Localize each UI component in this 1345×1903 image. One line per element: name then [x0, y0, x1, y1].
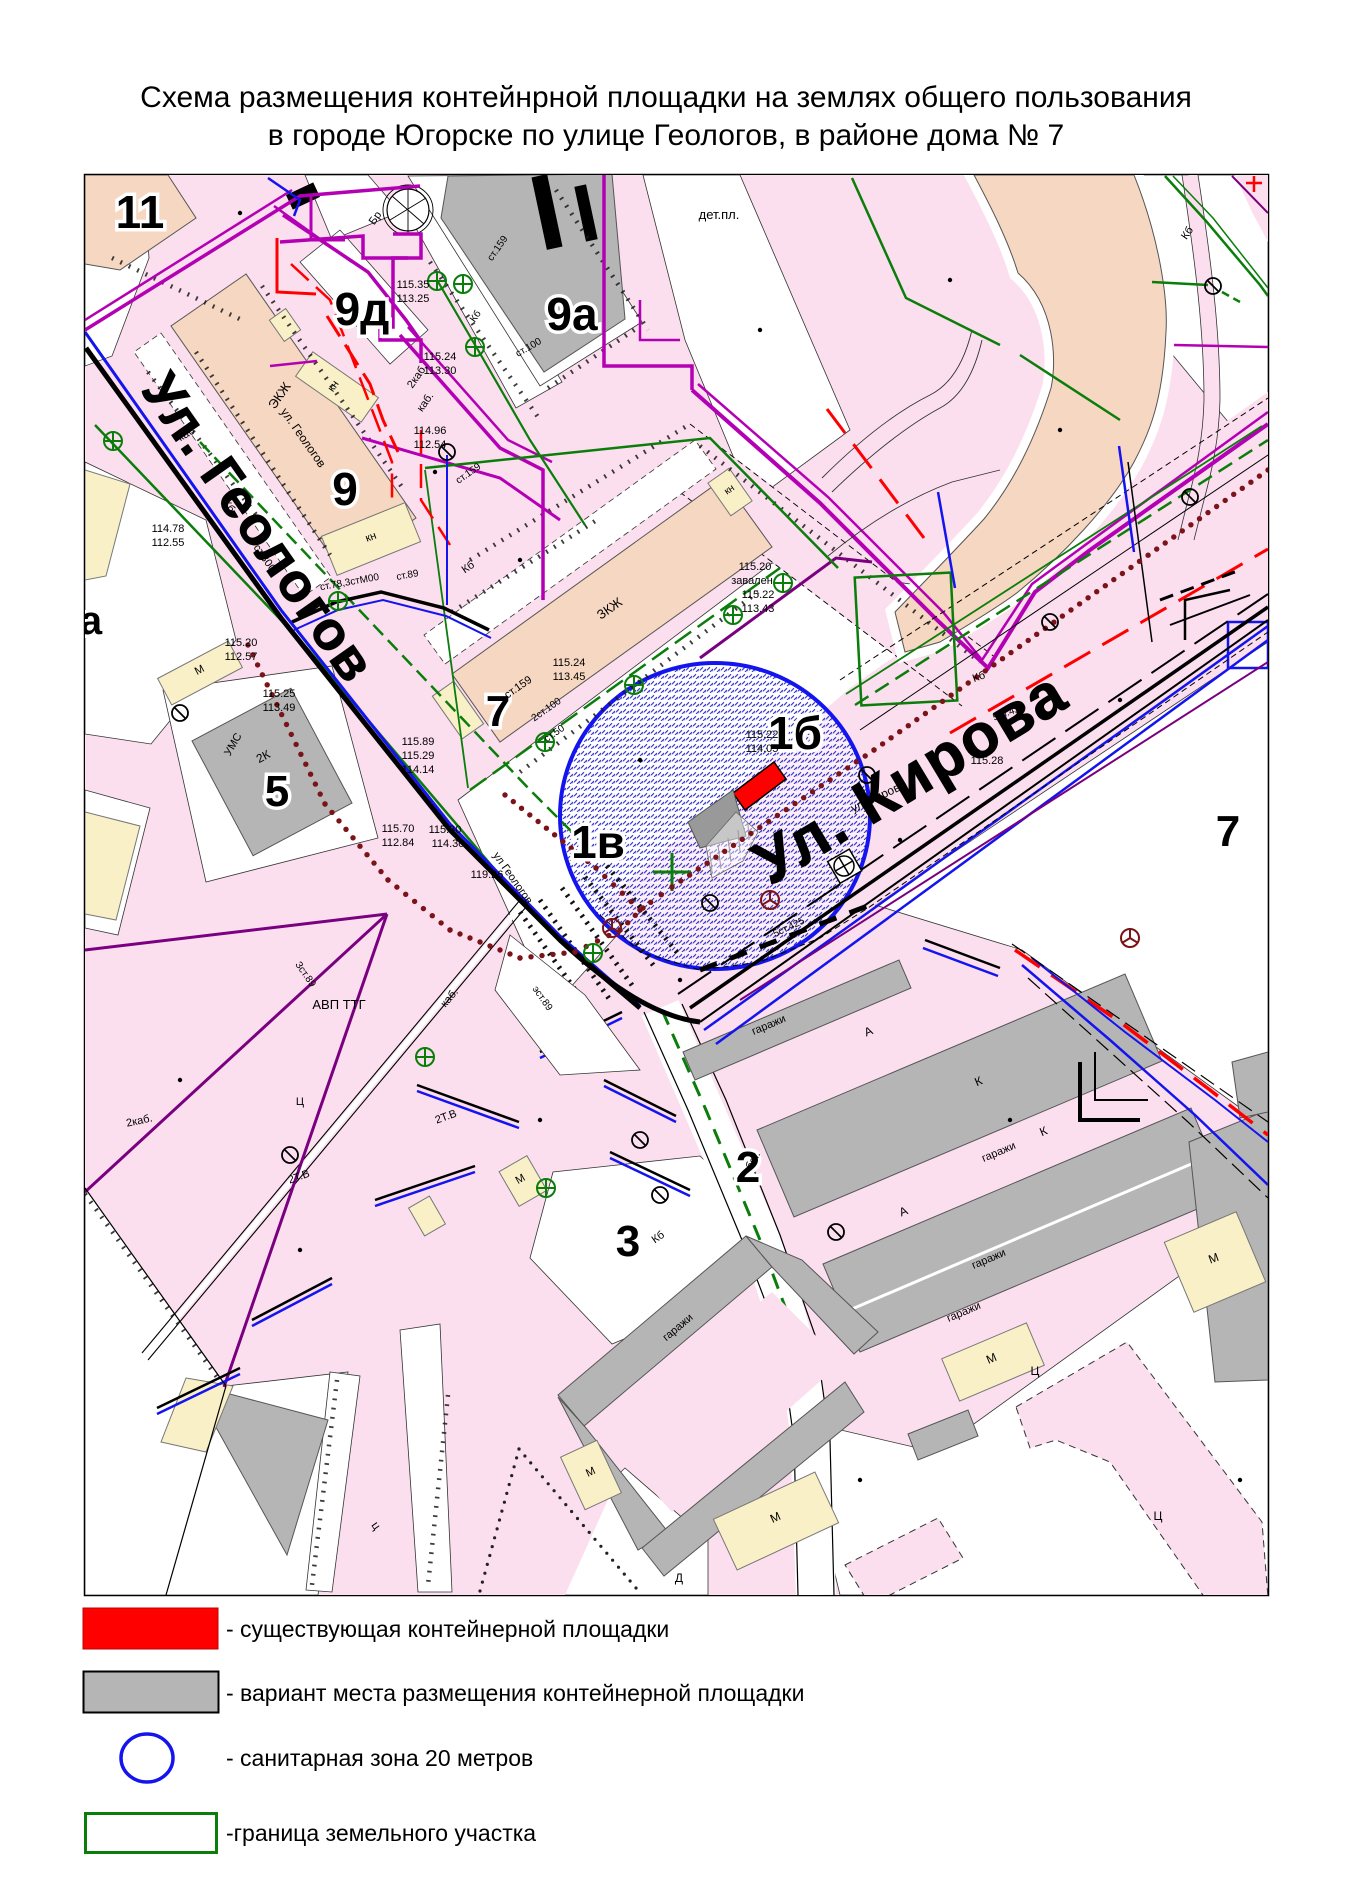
svg-text:115.22: 115.22	[746, 729, 779, 741]
svg-text:115.22: 115.22	[742, 589, 775, 601]
svg-text:113.49: 113.49	[263, 702, 296, 714]
svg-text:112.55: 112.55	[152, 537, 185, 549]
svg-text:112.57: 112.57	[225, 651, 258, 663]
svg-text:112.84: 112.84	[382, 837, 415, 849]
svg-text:113.45: 113.45	[553, 671, 586, 683]
svg-text:Ц: Ц	[1031, 1364, 1040, 1378]
svg-text:завален: завален	[731, 575, 773, 587]
svg-text:115.24: 115.24	[553, 657, 586, 669]
svg-text:114.14: 114.14	[402, 764, 435, 776]
svg-text:дет.пл.: дет.пл.	[699, 207, 740, 222]
svg-text:Ц: Ц	[1154, 1509, 1163, 1523]
svg-text:115.35: 115.35	[397, 279, 430, 291]
svg-text:Ц: Ц	[296, 1096, 304, 1108]
svg-text:1в: 1в	[571, 816, 625, 868]
svg-text:115.20: 115.20	[739, 561, 772, 573]
svg-text:113.43: 113.43	[742, 603, 775, 615]
svg-text:115.29: 115.29	[402, 750, 435, 762]
svg-text:9: 9	[332, 463, 358, 515]
svg-text:5: 5	[265, 767, 289, 816]
svg-text:- вариант места размещения кон: - вариант места размещения контейнерной …	[226, 1680, 804, 1706]
svg-text:3: 3	[616, 1217, 640, 1266]
svg-text:114.30: 114.30	[432, 838, 465, 850]
svg-text:7: 7	[1216, 807, 1240, 856]
svg-text:115.70: 115.70	[382, 823, 415, 835]
svg-text:-граница земельного участка: -граница земельного участка	[226, 1820, 536, 1846]
svg-text:в городе Югорске по улице Геол: в городе Югорске по улице Геологов, в ра…	[268, 119, 1064, 152]
svg-text:112.54: 112.54	[414, 439, 447, 451]
svg-text:Д: Д	[675, 1571, 683, 1585]
svg-text:- существующая контейнерной пл: - существующая контейнерной площадки	[226, 1616, 669, 1642]
svg-text:АВП ТТГ: АВП ТТГ	[312, 997, 365, 1012]
svg-text:9а: 9а	[546, 288, 598, 340]
svg-text:114.78: 114.78	[152, 523, 185, 535]
svg-text:115.24: 115.24	[424, 351, 457, 363]
svg-text:115.28: 115.28	[971, 755, 1004, 767]
svg-text:9д: 9д	[335, 283, 390, 335]
svg-text:114.05: 114.05	[746, 743, 779, 755]
svg-text:115.30: 115.30	[429, 824, 462, 836]
svg-text:119.26: 119.26	[471, 869, 504, 881]
svg-text:115.25: 115.25	[263, 688, 296, 700]
svg-text:113.25: 113.25	[397, 293, 430, 305]
svg-text:114.96: 114.96	[414, 425, 447, 437]
svg-text:115.89: 115.89	[402, 736, 435, 748]
svg-text:115.20: 115.20	[225, 637, 258, 649]
svg-text:11: 11	[116, 186, 165, 238]
svg-text:Схема размещения контейнрной п: Схема размещения контейнрной площадки на…	[140, 81, 1192, 114]
svg-text:- санитарная зона 20 метров: - санитарная зона 20 метров	[226, 1745, 533, 1771]
